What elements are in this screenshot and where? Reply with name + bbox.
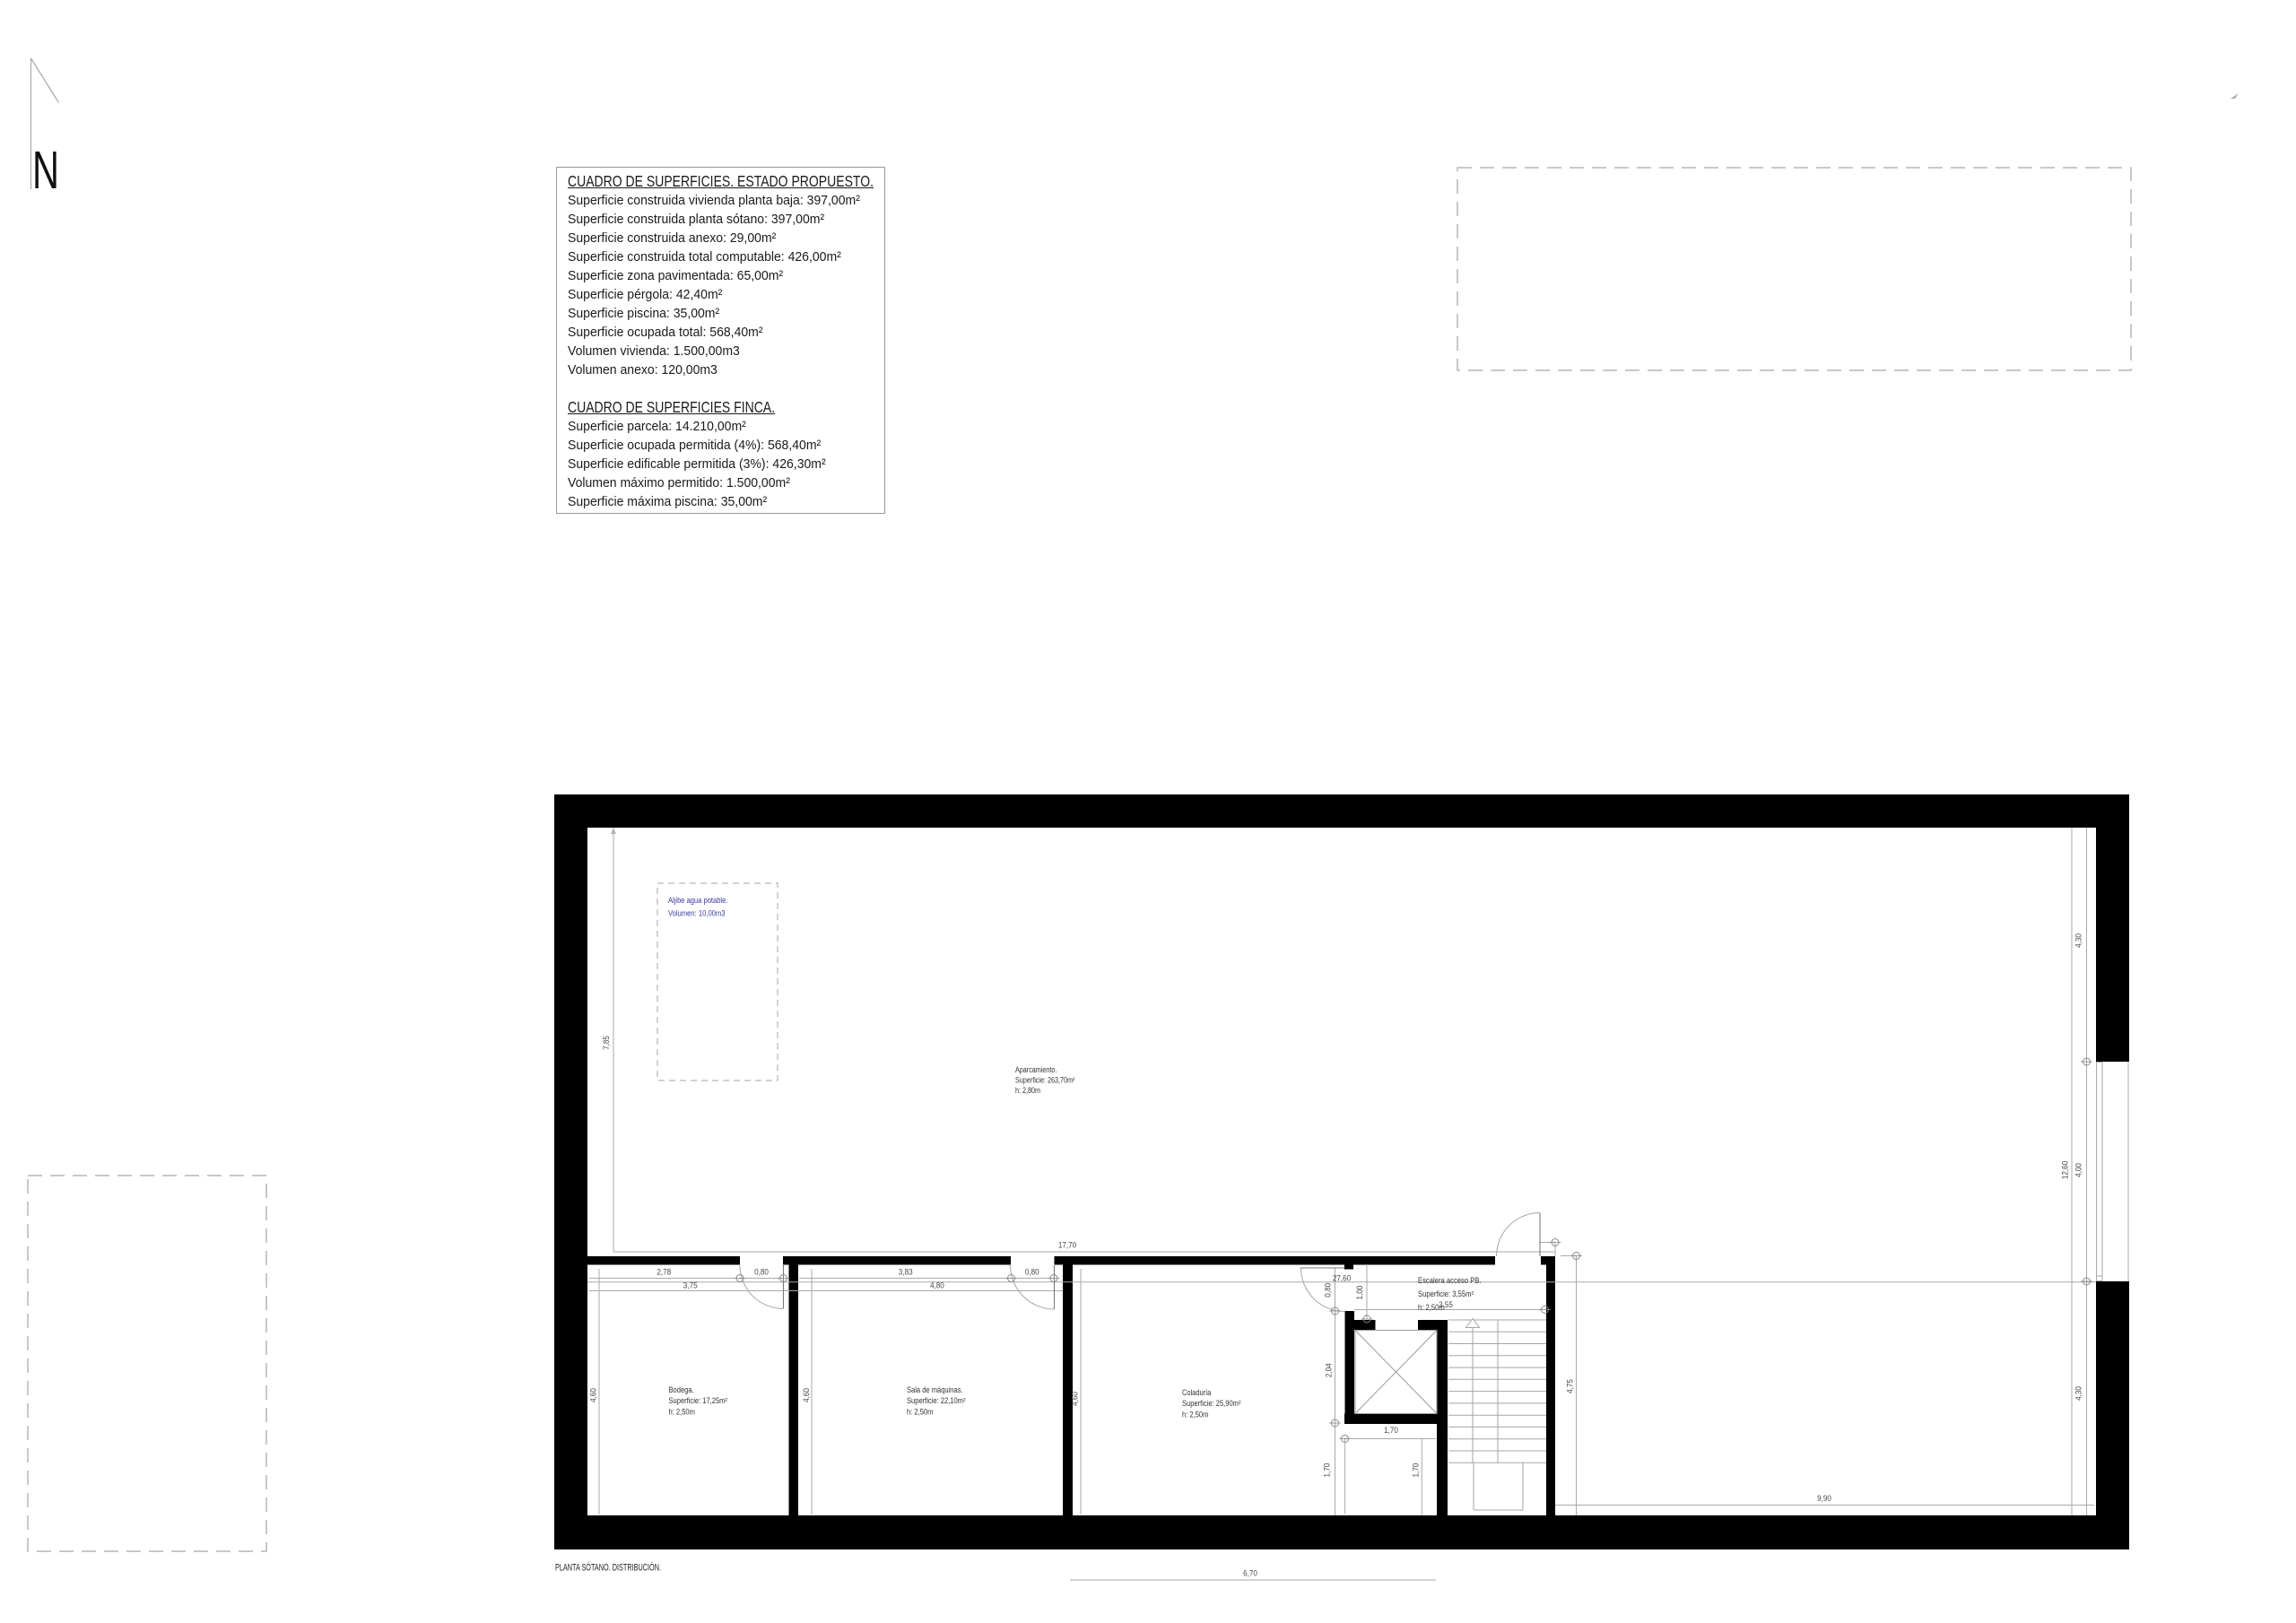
- svg-text:PLANTA SÓTANO. DISTRIBUCIÓN.: PLANTA SÓTANO. DISTRIBUCIÓN.: [555, 1562, 661, 1574]
- svg-text:4,60: 4,60: [802, 1388, 811, 1402]
- svg-text:4,30: 4,30: [2074, 933, 2083, 948]
- svg-text:4,80: 4,80: [930, 1281, 944, 1290]
- svg-text:Coladuría: Coladuría: [1182, 1388, 1211, 1397]
- svg-text:0,80: 0,80: [1025, 1268, 1039, 1277]
- svg-text:4,30: 4,30: [2074, 1386, 2083, 1401]
- svg-text:9,90: 9,90: [1817, 1494, 1831, 1503]
- svg-text:Superficie: 3,55m²: Superficie: 3,55m²: [1418, 1289, 1474, 1298]
- svg-text:4,75: 4,75: [1566, 1379, 1575, 1393]
- svg-text:h: 2,80m: h: 2,80m: [1015, 1086, 1040, 1095]
- svg-text:27,60: 27,60: [1333, 1273, 1351, 1282]
- svg-text:Sala de máquinas.: Sala de máquinas.: [907, 1385, 963, 1394]
- svg-text:Superficie: 22,10m²: Superficie: 22,10m²: [907, 1396, 966, 1405]
- svg-text:h: 2,50m: h: 2,50m: [1182, 1410, 1208, 1419]
- svg-text:N: N: [32, 141, 59, 200]
- svg-text:0,80: 0,80: [754, 1268, 769, 1277]
- svg-text:4,60: 4,60: [589, 1388, 598, 1402]
- svg-text:1,00: 1,00: [1355, 1286, 1364, 1300]
- svg-text:h: 2,50m: h: 2,50m: [669, 1407, 695, 1416]
- svg-text:7,85: 7,85: [602, 1036, 611, 1050]
- svg-text:4,00: 4,00: [2074, 1163, 2083, 1177]
- svg-text:Superficie: 25,90m²: Superficie: 25,90m²: [1182, 1399, 1241, 1408]
- svg-text:Volumen: 10,00m3: Volumen: 10,00m3: [668, 909, 726, 918]
- svg-text:h: 2,50m: h: 2,50m: [907, 1407, 933, 1416]
- svg-text:Superficie: 263,70m²: Superficie: 263,70m²: [1015, 1076, 1074, 1085]
- svg-text:Escalera acceso PB.: Escalera acceso PB.: [1418, 1276, 1482, 1285]
- svg-text:2,78: 2,78: [657, 1268, 671, 1277]
- svg-text:Superficie: 17,25m²: Superficie: 17,25m²: [669, 1396, 728, 1405]
- svg-text:17,70: 17,70: [1058, 1241, 1076, 1250]
- svg-text:1,70: 1,70: [1384, 1426, 1398, 1435]
- svg-text:12,60: 12,60: [2061, 1161, 2070, 1179]
- svg-text:h: 2,50m: h: 2,50m: [1418, 1303, 1445, 1312]
- svg-text:1,70: 1,70: [1323, 1463, 1332, 1478]
- svg-text:Aparcamiento.: Aparcamiento.: [1015, 1065, 1057, 1074]
- svg-text:3,75: 3,75: [683, 1281, 698, 1290]
- svg-text:0,80: 0,80: [1324, 1283, 1333, 1298]
- svg-text:Bodega.: Bodega.: [669, 1385, 694, 1394]
- svg-text:Aljibe agua potable.: Aljibe agua potable.: [668, 896, 727, 905]
- svg-text:3,83: 3,83: [899, 1268, 913, 1277]
- svg-text:1,70: 1,70: [1412, 1463, 1421, 1478]
- svg-text:4,60: 4,60: [1071, 1392, 1080, 1406]
- svg-text:6,70: 6,70: [1243, 1569, 1257, 1578]
- svg-text:2,04: 2,04: [1325, 1363, 1334, 1377]
